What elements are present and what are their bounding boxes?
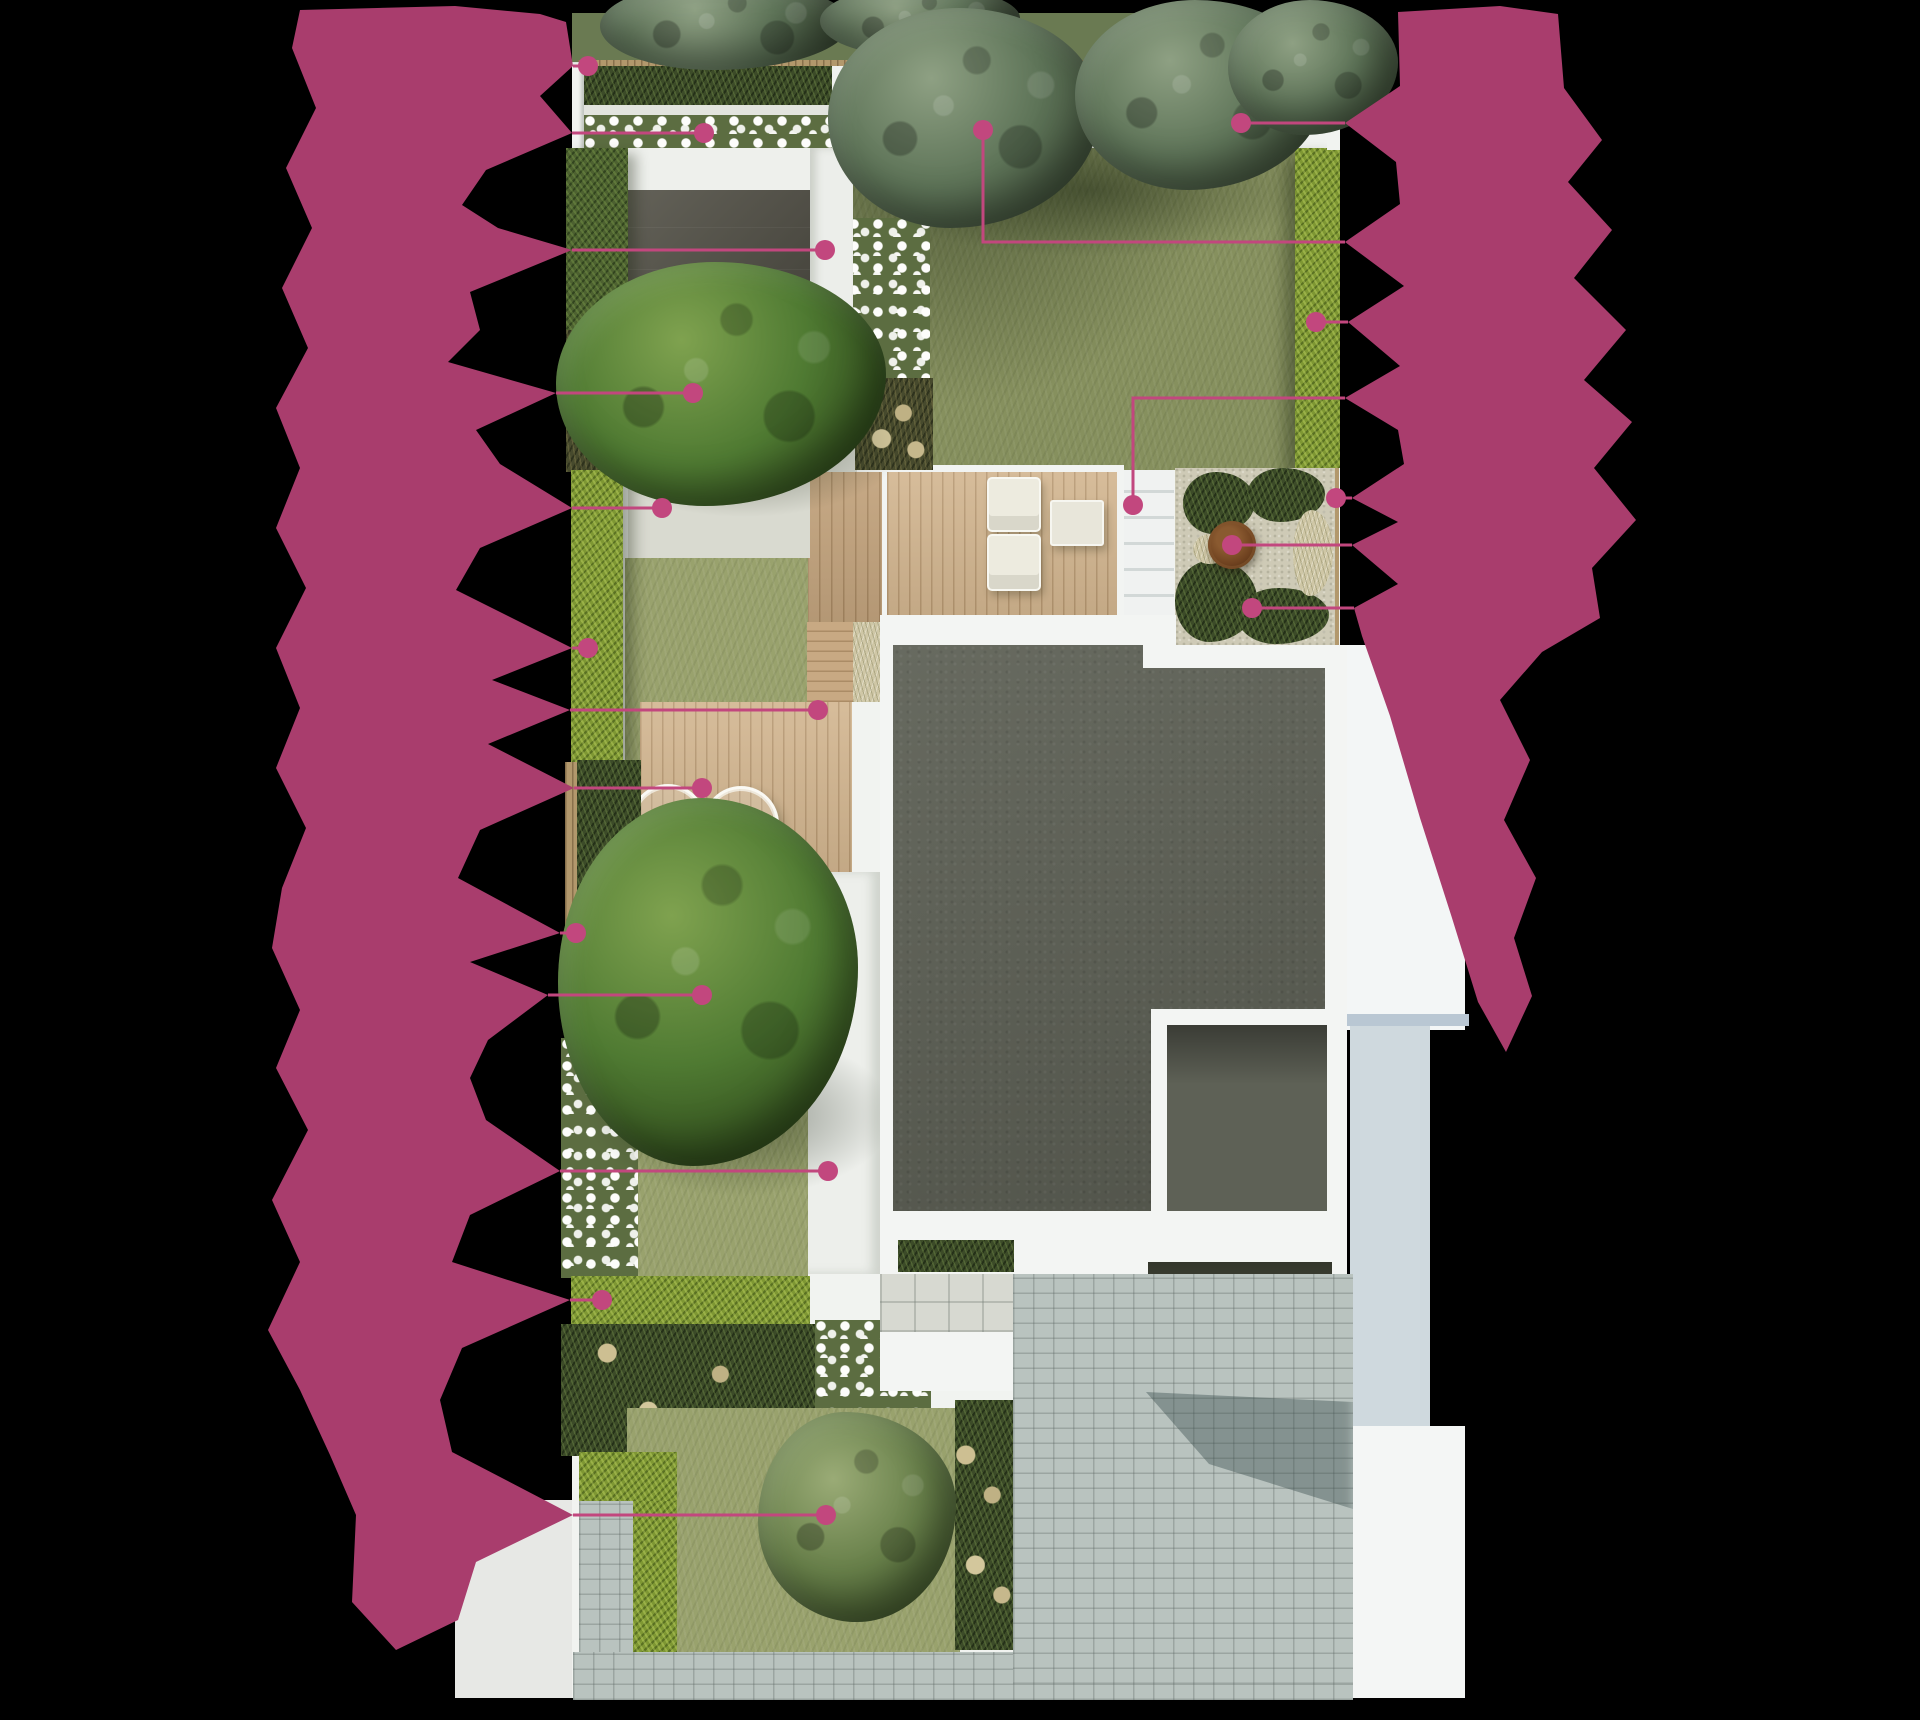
- annotation-marker-canopy-tree-back: [1231, 113, 1251, 133]
- annotation-marker-boundary-fence-left: [566, 923, 586, 943]
- annotation-marker-side-path: [815, 240, 835, 260]
- leader-line-garden-gate: [983, 130, 1345, 242]
- label-block-left: [268, 6, 574, 1650]
- label-block-right: [1345, 6, 1636, 1052]
- annotation-marker-specimen-tree-middle: [692, 985, 712, 1005]
- annotation-marker-stone-terrace: [652, 498, 672, 518]
- leader-lines-group: [548, 56, 1354, 1525]
- annotation-marker-garden-path: [818, 1161, 838, 1181]
- leader-line-house-steps: [1133, 398, 1345, 505]
- annotation-marker-fire-bowl: [1222, 535, 1242, 555]
- annotation-marker-gravel-planting: [1242, 598, 1262, 618]
- annotation-marker-top-flower-bed: [694, 123, 714, 143]
- annotation-marker-back-hedge: [1306, 312, 1326, 332]
- annotation-marker-deck-walkway: [808, 700, 828, 720]
- annotation-marker-front-hedge: [592, 1290, 612, 1310]
- annotation-marker-top-boundary-fence: [578, 56, 598, 76]
- annotation-marker-garden-gate: [973, 120, 993, 140]
- annotation-marker-house-steps: [1123, 495, 1143, 515]
- garden-plan-canvas: [0, 0, 1920, 1720]
- annotation-overlay: [0, 0, 1920, 1720]
- annotation-marker-front-shrub: [816, 1505, 836, 1525]
- annotation-marker-specimen-tree-north: [683, 383, 703, 403]
- annotation-marker-dining-deck: [692, 778, 712, 798]
- annotation-marker-side-hedge: [578, 638, 598, 658]
- annotation-marker-boundary-fence-right: [1326, 488, 1346, 508]
